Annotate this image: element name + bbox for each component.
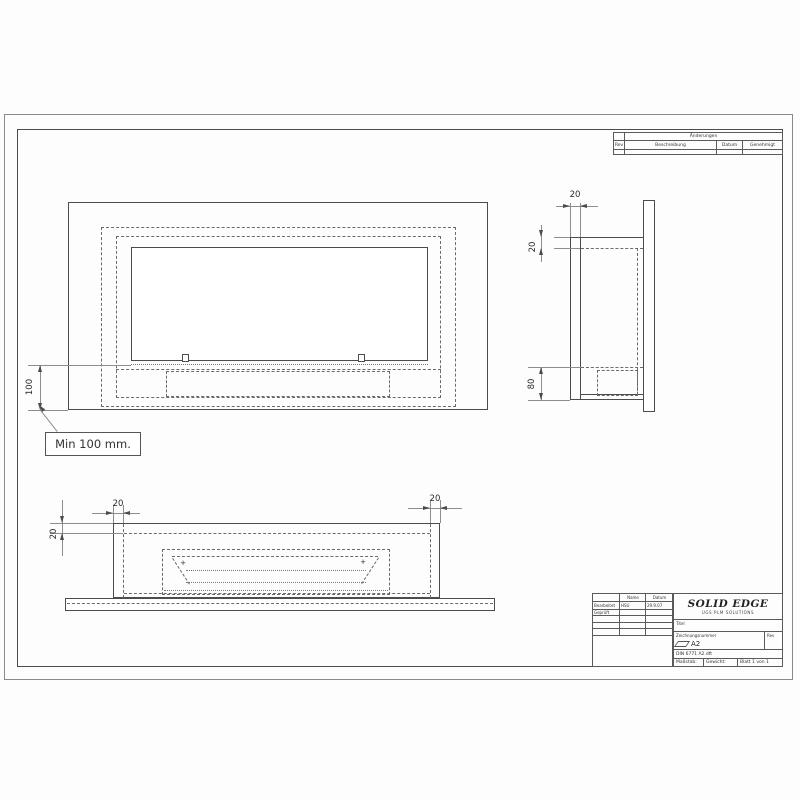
drawing-line — [554, 237, 570, 238]
titel-label: Titel — [674, 620, 782, 626]
drawing-line — [123, 511, 130, 515]
info-corner-cell — [593, 594, 620, 601]
info-empty-cell — [646, 610, 672, 615]
drawing-line — [580, 237, 581, 400]
drawing-line — [570, 237, 571, 400]
drawing-line — [570, 203, 571, 237]
revision-col-rev: Rev — [614, 141, 625, 149]
drawing-line — [563, 204, 570, 208]
drawing-line: Änderungen — [614, 133, 782, 140]
info-empty-cell — [620, 623, 646, 628]
info-empty-cell — [593, 616, 620, 622]
logo-subtitle: UGS PLM SOLUTIONS — [702, 610, 754, 615]
massstab-cell: Maßstab: — [674, 659, 704, 666]
title-block-info-table: Name Datum Bearbeitet HSU 29.9.07 Geprüf… — [592, 593, 673, 667]
side-wall-plate — [643, 200, 655, 412]
drawing-line — [186, 570, 366, 571]
info-empty-cell — [620, 629, 646, 635]
info-col-datum: Datum — [646, 594, 672, 601]
revision-col-beschreibung: Beschreibung — [625, 141, 717, 149]
rev-cell: Rev — [764, 632, 782, 649]
drawing-line — [581, 367, 643, 368]
dim-side-depth: 20 — [564, 190, 586, 200]
dim-bottom-wall-right: 20 — [424, 494, 446, 504]
dim-side-top-wall: 20 — [528, 235, 538, 259]
drawing-line — [423, 506, 430, 510]
blatt-cell: Blatt 1 von 1 — [738, 659, 782, 666]
front-clip-right — [358, 354, 365, 362]
drawing-line — [539, 393, 543, 400]
front-window-opening — [131, 247, 428, 361]
front-burner-box — [166, 371, 390, 397]
projection-symbol — [674, 641, 690, 647]
drawing-line — [28, 365, 131, 366]
drawing-line — [60, 516, 64, 523]
drawing-line — [570, 399, 643, 400]
drawing-line — [528, 367, 581, 368]
drawing-line — [92, 513, 140, 514]
dim-side-burner-height: 80 — [527, 372, 537, 396]
revision-empty-cell — [717, 150, 743, 154]
drawing-line — [408, 508, 462, 509]
drawing-sheet: 100 Min 100 mm. 20 20 — [0, 0, 800, 800]
info-empty-cell — [620, 610, 646, 615]
drawing-line — [60, 533, 64, 540]
info-notes-area — [593, 636, 672, 666]
drawing-line — [186, 582, 366, 583]
filename-cell: DIN 6771 A2.dft — [674, 650, 782, 659]
info-empty-cell — [593, 623, 620, 628]
drawing-line — [593, 616, 672, 623]
drawing-line: Rev Beschreibung Datum Genehmigt — [614, 140, 782, 149]
drawing-number-cell: Zeichnungsnummer A2 Rev — [674, 632, 782, 650]
drawing-line — [554, 248, 580, 249]
drawing-line — [172, 556, 378, 557]
title-block-bottom-row: Maßstab: Gewicht: Blatt 1 von 1 — [674, 659, 782, 666]
logo-title: SOLID EDGE — [688, 599, 769, 610]
solid-edge-logo: SOLID EDGE UGS PLM SOLUTIONS — [674, 594, 782, 620]
info-empty-cell — [593, 629, 620, 635]
gewicht-cell: Gewicht: — [704, 659, 738, 666]
info-empty-cell — [646, 629, 672, 635]
drawing-line — [164, 590, 388, 591]
drawing-line — [593, 629, 672, 636]
info-empty-cell — [646, 616, 672, 622]
info-row-geprueft: Geprüft — [593, 610, 620, 615]
dim-bottom-wall-left: 20 — [107, 499, 129, 509]
rev-label: Rev — [765, 632, 782, 638]
drawing-line — [528, 400, 570, 401]
revision-col-genehmigt: Genehmigt — [743, 141, 782, 149]
drawing-line — [62, 500, 63, 556]
drawing-line — [614, 149, 782, 154]
drawing-line — [440, 506, 447, 510]
front-burner-slot-edge — [131, 364, 428, 365]
bottom-wall-plate — [65, 598, 495, 611]
info-empty-cell — [646, 623, 672, 628]
drawing-line — [124, 533, 430, 534]
revision-table-title: Änderungen — [625, 133, 782, 140]
info-row-bearbeitet: Bearbeitet — [593, 602, 620, 609]
drawing-line — [539, 230, 543, 237]
side-burner-box — [597, 370, 638, 396]
drawing-line — [38, 365, 42, 372]
min-distance-note: Min 100 mm. — [45, 432, 141, 456]
drawing-line — [67, 603, 493, 604]
drawing-line — [50, 523, 113, 524]
info-bearbeitet-datum: 29.9.07 — [646, 602, 672, 609]
info-bearbeitet-name: HSU — [620, 602, 646, 609]
revision-empty-cell — [614, 150, 625, 154]
info-col-name: Name — [620, 594, 646, 601]
drawing-line: Name Datum — [593, 594, 672, 602]
revision-empty-cell — [625, 150, 717, 154]
drawing-line — [581, 248, 643, 249]
drawing-line — [539, 248, 543, 255]
front-clip-left — [182, 354, 189, 362]
drawing-line — [106, 511, 113, 515]
revision-table: Änderungen Rev Beschreibung Datum Genehm… — [613, 132, 783, 155]
drawing-line — [539, 367, 543, 374]
dim-bottom-front-wall: 20 — [49, 522, 59, 546]
dim-front-height: 100 — [25, 375, 35, 399]
burner-mark-right: + — [359, 557, 367, 567]
drawing-line — [28, 410, 68, 411]
revision-rev-corner-cell — [614, 133, 625, 140]
drawing-line — [123, 524, 124, 598]
drawing-line: A2 — [676, 640, 703, 648]
revision-col-datum: Datum — [717, 141, 743, 149]
burner-mark-left: + — [179, 558, 187, 568]
title-block-main: SOLID EDGE UGS PLM SOLUTIONS Titel Zeich… — [673, 593, 783, 667]
drawing-line: Bearbeitet HSU 29.9.07 — [593, 602, 672, 610]
drawing-line — [580, 204, 587, 208]
sheet-size: A2 — [691, 640, 700, 648]
drawing-line — [430, 524, 431, 598]
revision-empty-cell — [743, 150, 782, 154]
titel-cell: Titel — [674, 620, 782, 632]
drawing-line — [580, 203, 581, 237]
front-hidden-shelf-line — [116, 369, 441, 370]
info-empty-cell — [620, 616, 646, 622]
